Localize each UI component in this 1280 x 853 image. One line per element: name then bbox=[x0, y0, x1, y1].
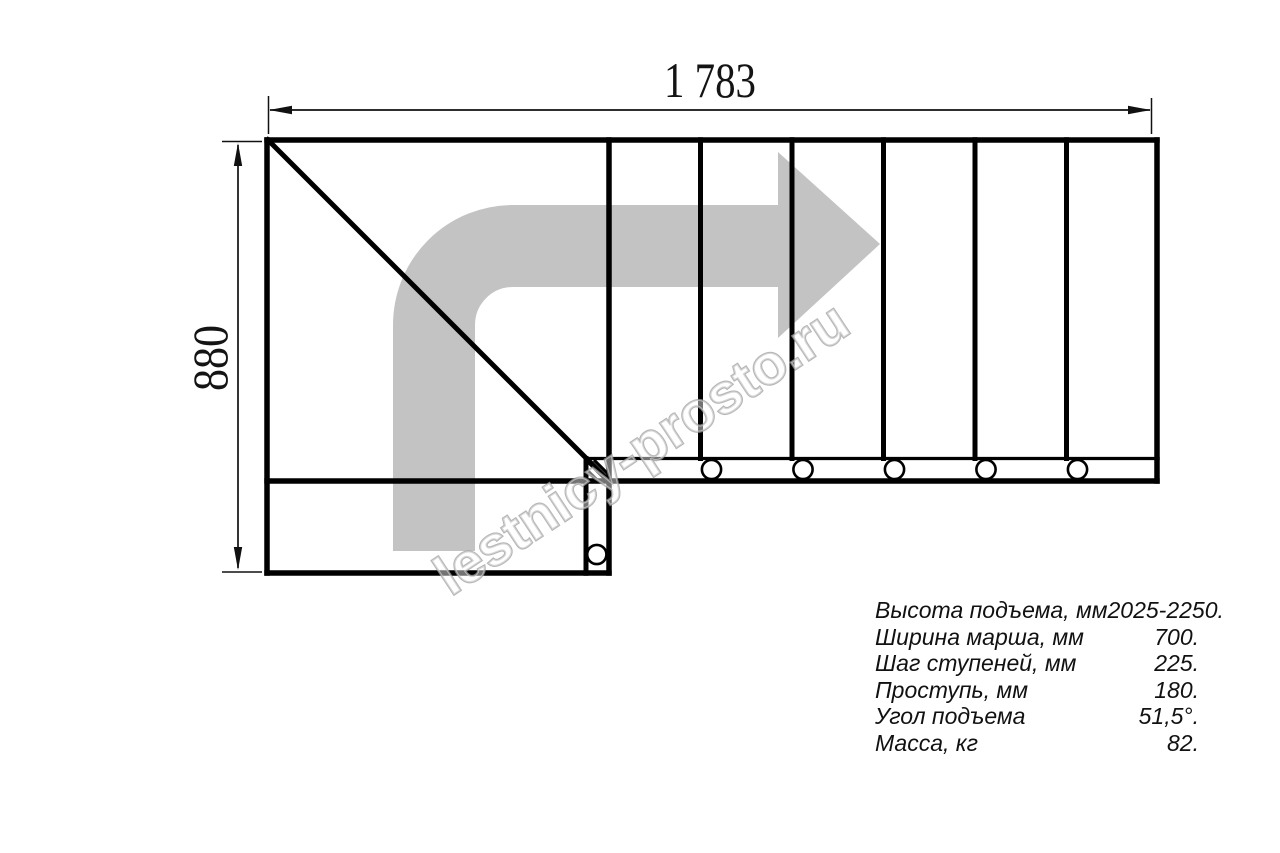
specs-table: Высота подъема, мм 2025-2250. Ширина мар… bbox=[875, 597, 1199, 756]
baluster-holes bbox=[587, 460, 1087, 564]
dimension-arrow-right-icon bbox=[1128, 106, 1151, 114]
spec-row: Масса, кг 82. bbox=[875, 730, 1199, 757]
dimension-arrow-left-icon bbox=[269, 106, 292, 114]
dimension-arrow-up-icon bbox=[234, 143, 242, 166]
spec-value: 180. bbox=[1154, 677, 1199, 704]
spec-row: Проступь, мм 180. bbox=[875, 677, 1199, 704]
baluster-hole bbox=[976, 460, 995, 479]
spec-label: Шаг ступеней, мм bbox=[875, 650, 1076, 677]
blueprint-canvas: 1 783 880 lestnicy-prosto.ru Высота подъ… bbox=[0, 0, 1280, 853]
width-dimension: 1 783 bbox=[269, 52, 1152, 134]
dimension-arrow-down-icon bbox=[234, 547, 242, 570]
baluster-hole bbox=[1068, 460, 1087, 479]
spec-row: Угол подъема 51,5°. bbox=[875, 703, 1199, 730]
height-dimension-label: 880 bbox=[182, 325, 238, 391]
height-dimension: 880 bbox=[182, 142, 262, 573]
spec-label: Проступь, мм bbox=[875, 677, 1028, 704]
spec-label: Масса, кг bbox=[875, 730, 978, 757]
spec-row: Ширина марша, мм 700. bbox=[875, 624, 1199, 651]
baluster-hole bbox=[587, 545, 606, 564]
spec-value: 2025-2250. bbox=[1108, 597, 1224, 624]
spec-value: 700. bbox=[1154, 624, 1199, 651]
tread-lines bbox=[701, 137, 1067, 461]
spec-value: 82. bbox=[1167, 730, 1199, 757]
spec-value: 225. bbox=[1154, 650, 1199, 677]
spec-row: Высота подъема, мм 2025-2250. bbox=[875, 597, 1199, 624]
spec-value: 51,5°. bbox=[1139, 703, 1199, 730]
baluster-hole bbox=[793, 460, 812, 479]
spec-label: Ширина марша, мм bbox=[875, 624, 1084, 651]
baluster-hole bbox=[885, 460, 904, 479]
spec-row: Шаг ступеней, мм 225. bbox=[875, 650, 1199, 677]
spec-label: Угол подъема bbox=[875, 703, 1025, 730]
spec-label: Высота подъема, мм bbox=[875, 597, 1108, 624]
width-dimension-label: 1 783 bbox=[664, 52, 756, 108]
baluster-hole bbox=[702, 460, 721, 479]
